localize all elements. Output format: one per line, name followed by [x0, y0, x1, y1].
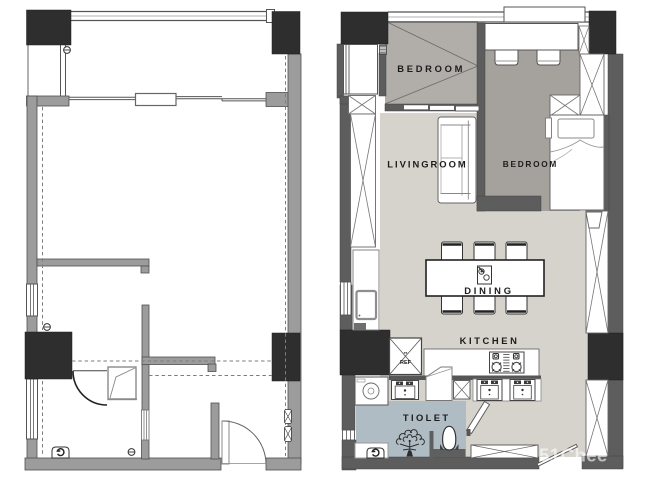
svg-text:BEDROOM: BEDROOM [397, 63, 465, 74]
svg-text:REF: REF [400, 360, 412, 366]
svg-text:LIVINGROOM: LIVINGROOM [387, 159, 467, 170]
svg-text:**: ** [404, 351, 408, 356]
svg-text:DINING: DINING [464, 285, 514, 296]
svg-text:KITCHEN: KITCHEN [460, 335, 520, 346]
svg-text:TIOLET: TIOLET [403, 412, 451, 423]
svg-text:51Chee: 51Chee [539, 445, 608, 466]
svg-text:BEDROOM: BEDROOM [503, 159, 558, 169]
